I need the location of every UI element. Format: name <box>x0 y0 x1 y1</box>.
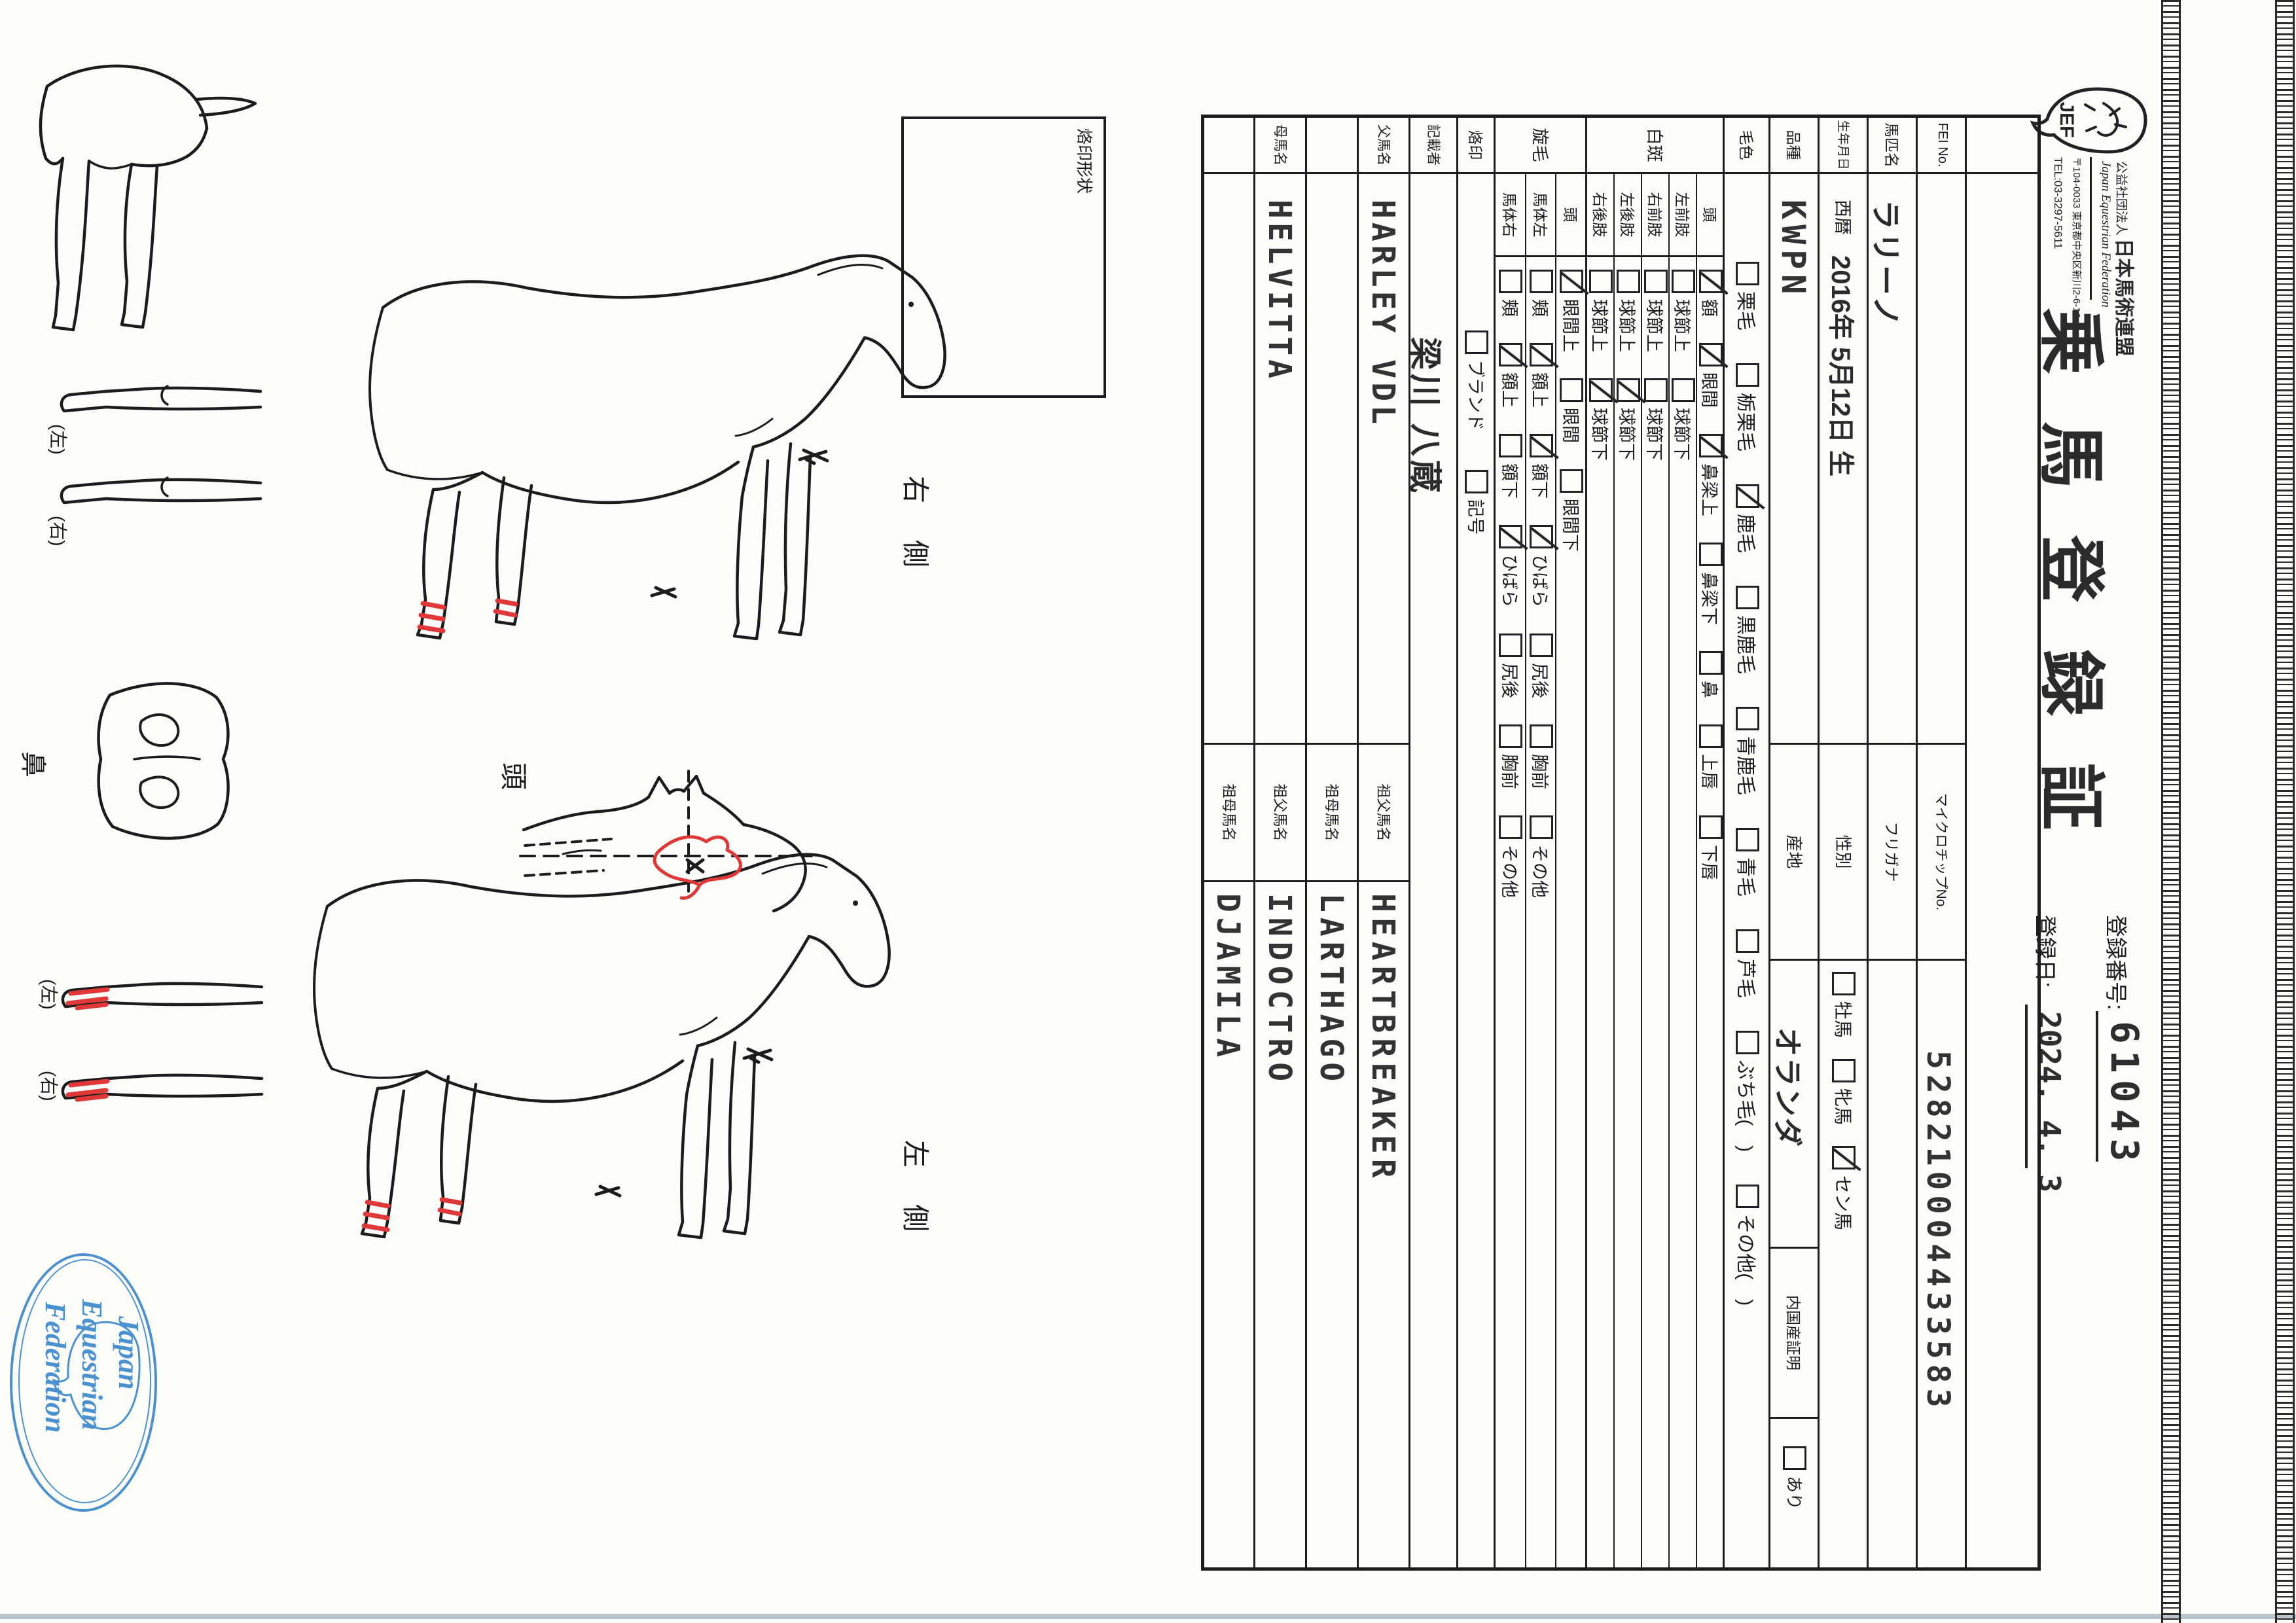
checkbox-item: 球節上 <box>1643 270 1669 352</box>
decorative-border-top <box>2275 0 2295 1623</box>
checked-checkbox-icon <box>1530 525 1553 548</box>
org-name-en: Japan Equestrian Federation <box>2098 161 2113 308</box>
checkbox-item-label: 球節上 <box>1588 299 1614 352</box>
checkbox-item-label: 下唇 <box>1698 845 1724 880</box>
empty-checkbox-icon <box>1499 815 1523 839</box>
checkbox-item-label: 牝馬 <box>1831 1088 1857 1125</box>
white-row-rf-items: 球節上球節下 <box>1642 270 1670 461</box>
page-title: 乗馬登録証 <box>2028 308 2125 877</box>
checkbox-item-label: 球節下 <box>1588 408 1614 461</box>
sire-label: 父馬名 <box>1359 118 1410 172</box>
checkbox-item-label: 尻後 <box>1529 663 1554 698</box>
origin-label: 産地 <box>1770 745 1820 959</box>
whorl-row-head-label: 頭 <box>1556 174 1587 255</box>
checkbox-item: 眼間下 <box>1559 469 1585 552</box>
reg-no-label: 登録番号: <box>2102 915 2134 1010</box>
checked-checkbox-icon <box>1699 343 1723 366</box>
checkbox-item-label: その他 <box>1529 845 1554 898</box>
breed-label: 品種 <box>1770 118 1820 172</box>
stamp-line2: Equestrian <box>77 1299 106 1431</box>
sire-dam-label: 祖母馬名 <box>1307 745 1359 880</box>
checkbox-item-label: ぶち毛( ) <box>1733 1060 1762 1152</box>
checkbox-item: 球節下 <box>1588 378 1614 461</box>
birth-value: 2016年 5月12日 生 <box>1824 255 1862 476</box>
horse-name-value: ラリーノ <box>1866 200 1909 329</box>
coat-label: 毛色 <box>1725 118 1770 172</box>
left-side-caption: 左側 <box>897 1140 937 1268</box>
checkbox-item: 眼間 <box>1698 343 1724 408</box>
checkbox-item: 鹿毛 <box>1733 484 1762 553</box>
checkbox-item: 球節上 <box>1671 270 1696 352</box>
dam-sire-label: 祖父馬名 <box>1255 745 1307 880</box>
checkbox-item-label: 栗毛 <box>1733 291 1762 330</box>
checkbox-item: 額下 <box>1529 434 1554 499</box>
checkbox-item: 下唇 <box>1698 815 1724 880</box>
microchip-value: 528210004433583 <box>1920 1050 1956 1412</box>
origin-value: オランダ <box>1769 1027 1811 1148</box>
checkbox-item: 球節上 <box>1616 270 1641 352</box>
sire-value: HARLEY VDL <box>1365 200 1401 428</box>
checkbox-item: 眼間上 <box>1559 270 1585 352</box>
whorls-label: 旋毛 <box>1496 118 1587 172</box>
checkbox-item-label: 鼻梁上 <box>1698 463 1724 516</box>
empty-checkbox-icon <box>1644 378 1668 402</box>
brand-label: 烙印 <box>1458 118 1496 172</box>
checkbox-item: 黒鹿毛 <box>1733 586 1762 674</box>
checkbox-item: 額上 <box>1498 343 1524 408</box>
whorl-row-right-items: 頬額上額下ひばら尻後胸前その他 <box>1496 270 1526 898</box>
checkbox-item: 鼻梁上 <box>1698 434 1724 516</box>
checkbox-item-label: ブランド <box>1464 360 1490 431</box>
checkbox-item-label: 眼間 <box>1559 408 1585 443</box>
brand-options: ブランド記号 <box>1458 330 1496 535</box>
checkbox-item: 青毛 <box>1733 828 1762 897</box>
white-row-rh-label: 右後肢 <box>1587 174 1615 255</box>
empty-checkbox-icon <box>1560 469 1584 493</box>
reg-no-underline <box>2096 1011 2098 1162</box>
checkbox-item-label: 頬 <box>1498 299 1524 317</box>
whorl-row-head-items: 眼間上眼間眼間下 <box>1556 270 1587 552</box>
white-row-head-label: 頭 <box>1697 174 1725 255</box>
checkbox-item: ぶち毛( ) <box>1733 1031 1762 1152</box>
fei-no-label: FEI No. <box>1918 118 1967 172</box>
empty-checkbox-icon <box>1499 724 1523 748</box>
coat-options: 栗毛栃栗毛鹿毛黒鹿毛青鹿毛青毛芦毛ぶち毛( )その他( ) <box>1725 262 1770 1306</box>
head-caption: 頭 <box>495 762 535 790</box>
empty-checkbox-icon <box>1617 270 1640 293</box>
dam-label: 母馬名 <box>1255 118 1307 172</box>
front-leg-right-caption: (右) <box>46 516 72 546</box>
empty-checkbox-icon <box>1699 651 1723 675</box>
domestic-options: あり <box>1770 1446 1820 1510</box>
hind-leg-left-caption: (左) <box>37 979 63 1010</box>
sex-label: 性別 <box>1820 745 1869 959</box>
checkbox-item: その他( ) <box>1733 1185 1762 1306</box>
checkbox-item-label: 額上 <box>1498 372 1524 408</box>
empty-checkbox-icon <box>1672 378 1695 402</box>
white-row-lh-label: 左後肢 <box>1615 174 1642 255</box>
checkbox-item: 額下 <box>1498 434 1524 499</box>
nose-caption: 鼻 <box>16 751 54 777</box>
checkbox-item-label: 鼻梁下 <box>1698 572 1724 625</box>
checkbox-item-label: 眼間下 <box>1559 499 1585 552</box>
checked-checkbox-icon <box>1699 270 1723 293</box>
checkbox-item-label: 黒鹿毛 <box>1733 615 1762 674</box>
checkbox-item-label: 眼間 <box>1698 372 1724 408</box>
empty-checkbox-icon <box>1589 270 1613 293</box>
scanned-certificate-page: JEF 公益社団法人 日本馬術連盟 Japan Equestrian Feder… <box>0 0 2296 1623</box>
front-leg-left-caption: (左) <box>46 424 72 455</box>
checkbox-item-label: あり <box>1783 1476 1807 1510</box>
checkbox-item-label: セン馬 <box>1831 1175 1857 1230</box>
checkbox-item-label: 牡馬 <box>1831 1001 1857 1038</box>
checkbox-item: ブランド <box>1464 330 1490 431</box>
checkbox-item: 球節上 <box>1588 270 1614 352</box>
brand-shape-label: 烙印形状 <box>1073 128 1097 194</box>
empty-checkbox-icon <box>1530 724 1553 748</box>
white-row-rh-items: 球節上球節下 <box>1587 270 1615 461</box>
sire-sire-label: 祖父馬名 <box>1359 745 1410 880</box>
checkbox-item-label: 記号 <box>1464 499 1490 535</box>
empty-checkbox-icon <box>1833 972 1856 995</box>
white-markings-label: 白斑 <box>1587 118 1725 172</box>
empty-checkbox-icon <box>1736 929 1759 953</box>
checkbox-item-label: 額下 <box>1498 463 1524 499</box>
checkbox-item: 額上 <box>1529 343 1554 408</box>
checkbox-item-label: 眼間上 <box>1559 299 1585 352</box>
checkbox-item-label: 球節下 <box>1616 408 1641 461</box>
checkbox-item: セン馬 <box>1831 1146 1857 1230</box>
empty-checkbox-icon <box>1736 1185 1759 1208</box>
checkbox-item-label: 球節上 <box>1616 299 1641 352</box>
brand-shape-box: 烙印形状 <box>901 116 1106 398</box>
empty-checkbox-icon <box>1499 270 1523 293</box>
checkbox-item: 牡馬 <box>1831 972 1857 1038</box>
empty-checkbox-icon <box>1784 1446 1807 1470</box>
empty-checkbox-icon <box>1699 543 1723 566</box>
jef-logo-text: JEF <box>2056 101 2077 137</box>
checkbox-item-label: 頬 <box>1529 299 1554 317</box>
empty-checkbox-icon <box>1465 330 1489 354</box>
furigana-label: フリガナ <box>1869 745 1918 959</box>
breed-value: KWPN <box>1774 200 1812 299</box>
dam-dam-label: 祖母馬名 <box>1204 745 1255 880</box>
checkbox-item: 頬 <box>1498 270 1524 317</box>
empty-checkbox-icon <box>1530 633 1553 657</box>
checked-checkbox-icon <box>1736 484 1759 508</box>
checkbox-item: 胸前 <box>1498 724 1524 789</box>
stamp-line3: Federation <box>41 1302 69 1433</box>
checkbox-item: ひばら <box>1498 525 1524 607</box>
white-row-rf-label: 右前肢 <box>1642 174 1670 255</box>
checkbox-item-label: 鼻 <box>1698 681 1724 698</box>
sire-dam-value: LARTHAGO <box>1313 893 1350 1086</box>
checkbox-item: 尻後 <box>1529 633 1554 698</box>
birth-label: 生年月日 <box>1820 118 1869 172</box>
checkbox-item: 頬 <box>1529 270 1554 317</box>
empty-checkbox-icon <box>1736 1031 1759 1054</box>
checkbox-item: 眼間 <box>1559 378 1585 443</box>
white-row-head-items: 額眼間鼻梁上鼻梁下鼻上唇下唇 <box>1697 270 1725 880</box>
reg-no-value: 61043 <box>2102 1021 2147 1168</box>
checkbox-item-label: 球節下 <box>1671 408 1696 461</box>
dam-value: HELVITTA <box>1261 200 1298 382</box>
checkbox-item: 額 <box>1698 270 1724 317</box>
checkbox-item: 栗毛 <box>1733 262 1762 330</box>
empty-checkbox-icon <box>1699 724 1723 748</box>
checkbox-item-label: その他( ) <box>1733 1214 1762 1306</box>
checkbox-item-label: 尻後 <box>1498 663 1524 698</box>
empty-checkbox-icon <box>1644 270 1668 293</box>
registration-table: FEI No. マイクロチップNo. 528210004433583 馬匹名 ラ… <box>1201 115 2041 1571</box>
checkbox-item: 球節下 <box>1671 378 1696 461</box>
checkbox-item-label: 青鹿毛 <box>1733 736 1762 795</box>
checkbox-item-label: ひばら <box>1529 554 1554 607</box>
empty-checkbox-icon <box>1699 815 1723 839</box>
checkbox-item-label: 栃栗毛 <box>1733 393 1762 452</box>
right-side-caption: 右側 <box>897 476 937 604</box>
checked-checkbox-icon <box>1560 270 1584 293</box>
checkbox-item: その他 <box>1529 815 1554 898</box>
jef-logo: JEF <box>2025 84 2149 156</box>
sire-sire-value: HEARTBREAKER <box>1365 893 1401 1183</box>
empty-checkbox-icon <box>1672 270 1695 293</box>
checkbox-item: 栃栗毛 <box>1733 363 1762 452</box>
dam-dam-value: DJAMILA <box>1210 893 1246 1062</box>
org-tel: TEL:03-3297-5611 <box>2051 157 2064 249</box>
checkbox-item-label: 額下 <box>1529 463 1554 499</box>
sex-options: 牡馬牝馬セン馬 <box>1820 972 1869 1230</box>
checkbox-item: 牝馬 <box>1831 1059 1857 1125</box>
checkbox-item-label: 球節上 <box>1643 299 1669 352</box>
checkbox-item: あり <box>1783 1446 1807 1510</box>
checked-checkbox-icon <box>1617 378 1640 402</box>
whorl-row-right-label: 馬体右 <box>1496 174 1526 255</box>
checkbox-item: ひばら <box>1529 525 1554 607</box>
empty-checkbox-icon <box>1736 828 1759 851</box>
white-row-lf-label: 左前肢 <box>1670 174 1697 255</box>
jef-ink-stamp: Japan Equestrian Federation <box>10 1253 157 1512</box>
document-rotated-layer: JEF 公益社団法人 日本馬術連盟 Japan Equestrian Feder… <box>0 0 2296 1623</box>
domestic-label: 内国産証明 <box>1770 1249 1820 1417</box>
stamp-line1: Japan <box>114 1316 143 1389</box>
checkbox-item: 鼻梁下 <box>1698 543 1724 625</box>
birth-era: 西暦 <box>1831 200 1857 235</box>
decorative-border-inner <box>2161 0 2181 1623</box>
empty-checkbox-icon <box>1530 815 1553 839</box>
white-row-lh-items: 球節上球節下 <box>1615 270 1642 461</box>
org-small: 公益社団法人 <box>2114 161 2128 236</box>
microchip-label: マイクロチップNo. <box>1918 745 1967 959</box>
checked-checkbox-icon <box>1499 525 1523 548</box>
checkbox-item-label: 球節上 <box>1671 299 1696 352</box>
checkbox-item: 鼻 <box>1698 651 1724 698</box>
checkbox-item: 上唇 <box>1698 724 1724 789</box>
checkbox-item-label: 芦毛 <box>1733 959 1762 998</box>
checkbox-item-label: 球節下 <box>1643 408 1669 461</box>
checkbox-item: 記号 <box>1464 470 1490 535</box>
checkbox-item-label: その他 <box>1498 845 1524 898</box>
checked-checkbox-icon <box>1833 1146 1856 1169</box>
horse-name-label: 馬匹名 <box>1869 118 1918 172</box>
checkbox-item-label: 額上 <box>1529 372 1554 408</box>
checkbox-item: 胸前 <box>1529 724 1554 789</box>
whorl-row-left-label: 馬体左 <box>1526 174 1556 255</box>
empty-checkbox-icon <box>1560 378 1584 402</box>
white-row-lf-items: 球節上球節下 <box>1670 270 1697 461</box>
recorder-value: 梁川 八蔵 <box>1404 337 1451 497</box>
checkbox-item-label: 鹿毛 <box>1733 514 1762 553</box>
checkbox-item: 尻後 <box>1498 633 1524 698</box>
checkbox-item-label: 額 <box>1698 299 1724 317</box>
checkbox-item: 青鹿毛 <box>1733 707 1762 795</box>
checkbox-item-label: ひばら <box>1498 554 1524 607</box>
empty-checkbox-icon <box>1736 707 1759 730</box>
whorl-row-left-items: 頬額上額下ひばら尻後胸前その他 <box>1526 270 1556 898</box>
empty-checkbox-icon <box>1530 270 1553 293</box>
dam-sire-value: INDOCTRO <box>1261 893 1298 1086</box>
checkbox-item-label: 胸前 <box>1529 754 1554 789</box>
checked-checkbox-icon <box>1589 378 1613 402</box>
empty-checkbox-icon <box>1736 262 1759 285</box>
checkbox-item: 球節下 <box>1643 378 1669 461</box>
checked-checkbox-icon <box>1530 434 1553 457</box>
checkbox-item: 球節下 <box>1616 378 1641 461</box>
empty-checkbox-icon <box>1736 363 1759 387</box>
empty-checkbox-icon <box>1499 434 1523 457</box>
org-divider <box>2090 157 2092 300</box>
empty-checkbox-icon <box>1736 586 1759 609</box>
recorder-label: 記載者 <box>1410 118 1458 172</box>
org-address: 〒104-0033 東京都中央区新川2-6-16 <box>2070 157 2084 318</box>
checkbox-item-label: 胸前 <box>1498 754 1524 789</box>
checkbox-item: 芦毛 <box>1733 929 1762 998</box>
hind-leg-right-caption: (右) <box>37 1071 63 1101</box>
empty-checkbox-icon <box>1499 633 1523 657</box>
checked-checkbox-icon <box>1699 434 1723 457</box>
checkbox-item-label: 青毛 <box>1733 857 1762 897</box>
checkbox-item-label: 上唇 <box>1698 754 1724 789</box>
empty-checkbox-icon <box>1465 470 1489 493</box>
checked-checkbox-icon <box>1530 343 1553 366</box>
checkbox-item: その他 <box>1498 815 1524 898</box>
empty-checkbox-icon <box>1833 1059 1856 1082</box>
checked-checkbox-icon <box>1499 343 1523 366</box>
